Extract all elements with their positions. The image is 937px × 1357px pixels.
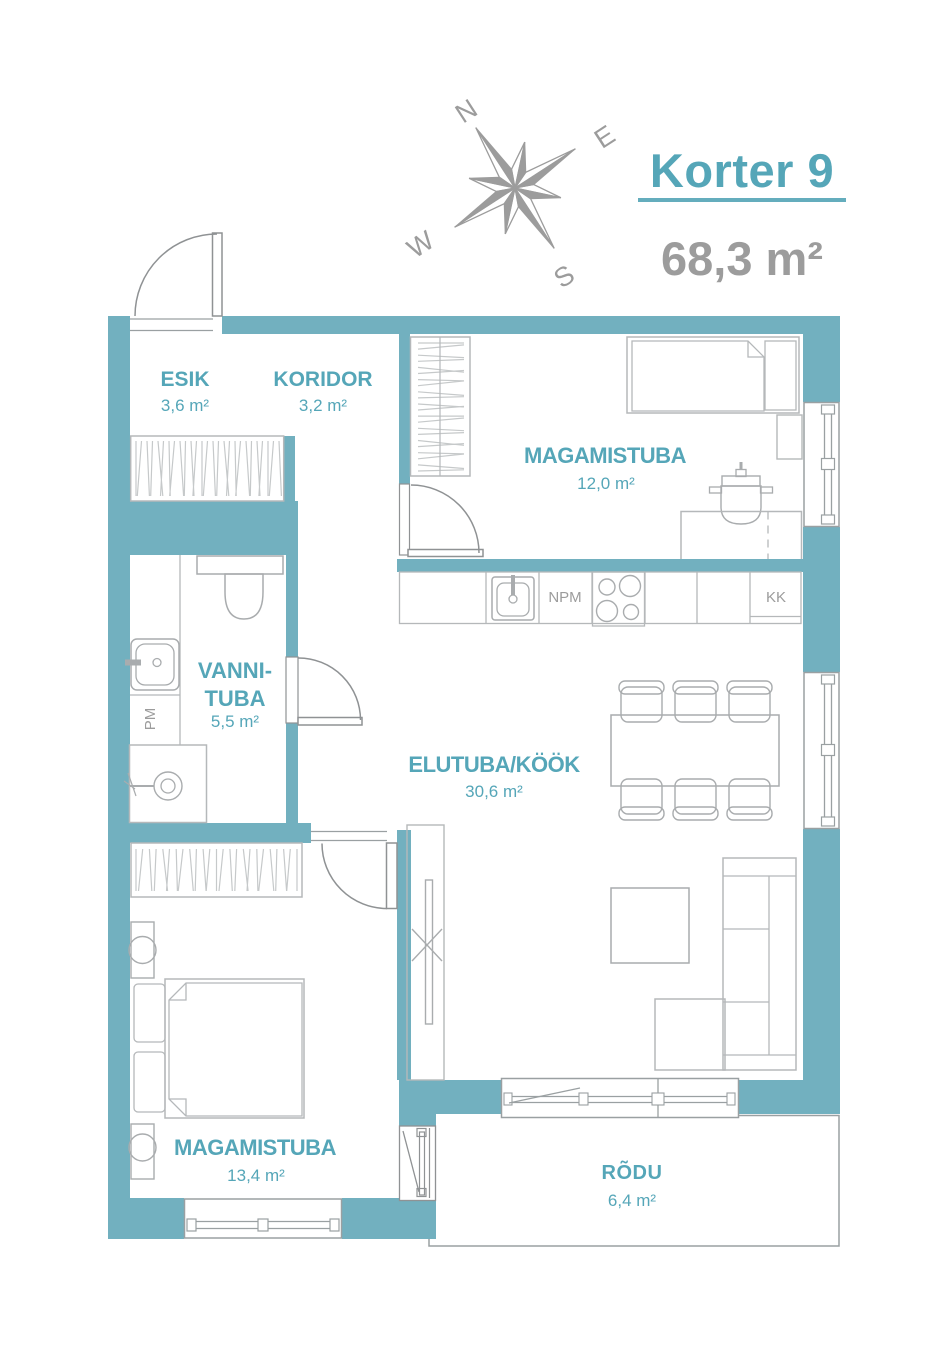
svg-text:VANNI-: VANNI- [198, 658, 272, 683]
svg-text:ESIK: ESIK [160, 368, 209, 391]
svg-text:MAGAMISTUBA: MAGAMISTUBA [524, 443, 687, 468]
svg-text:3,2 m²: 3,2 m² [299, 396, 348, 415]
svg-text:5,5 m²: 5,5 m² [211, 712, 260, 731]
svg-text:ELUTUBA/KÖÖK: ELUTUBA/KÖÖK [408, 752, 580, 777]
svg-text:68,3 m²: 68,3 m² [661, 232, 823, 285]
svg-text:6,4 m²: 6,4 m² [608, 1191, 657, 1210]
svg-text:30,6 m²: 30,6 m² [465, 782, 523, 801]
svg-text:PM: PM [142, 708, 159, 731]
svg-text:TUBA: TUBA [204, 686, 265, 711]
svg-text:13,4 m²: 13,4 m² [227, 1166, 285, 1185]
svg-text:RÕDU: RÕDU [602, 1160, 663, 1184]
svg-text:NPM: NPM [548, 589, 581, 606]
svg-text:Korter 9: Korter 9 [650, 144, 834, 197]
svg-text:12,0 m²: 12,0 m² [577, 474, 635, 493]
svg-text:KORIDOR: KORIDOR [273, 368, 372, 391]
svg-text:3,6 m²: 3,6 m² [161, 396, 210, 415]
svg-text:KK: KK [766, 589, 786, 606]
svg-text:MAGAMISTUBA: MAGAMISTUBA [174, 1135, 337, 1160]
